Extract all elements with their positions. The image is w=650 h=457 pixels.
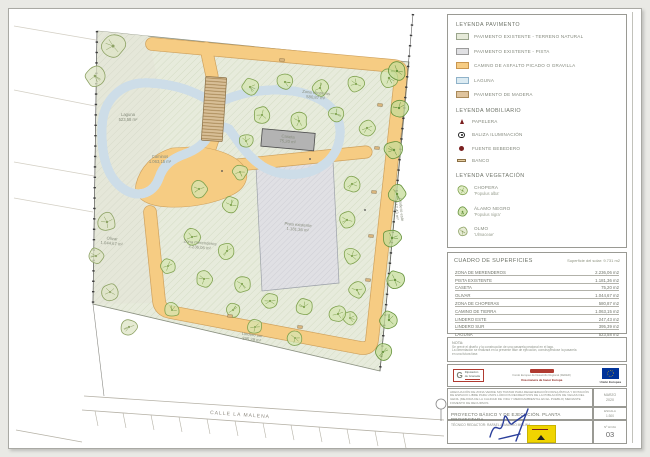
logos-box: G Diputaciónde Granada Fondo Europeo de … <box>447 364 627 387</box>
tree <box>376 344 392 361</box>
tree <box>254 107 269 124</box>
icon-wrap <box>456 146 467 151</box>
legend-item-label: CHOPERA <box>474 185 499 190</box>
surface-row: LINDERO ESTE247,43 m2 <box>455 315 619 323</box>
legend-item-label: BANCO <box>472 158 489 163</box>
legend-item-label: FUENTE BEBEDERO <box>472 146 520 151</box>
surface-row: OLIVAR1.044,67 m2 <box>455 291 619 299</box>
plan-sheet: CALLE LA MALENA Laguna523,58 m²Caminos1.… <box>0 0 650 457</box>
feder-emblem-icon <box>530 369 554 374</box>
tree <box>344 176 360 192</box>
legend-panel: LEYENDA PAVIMENTO PAVIMENTO EXISTENTE - … <box>447 14 627 248</box>
surface-value: 247,43 m2 <box>599 317 619 322</box>
nota-title: NOTA: <box>452 341 622 345</box>
diputacion-granada-logo: G Diputaciónde Granada <box>453 369 484 383</box>
baliza <box>364 209 366 211</box>
legend-item-label: LAGUNA <box>474 78 494 83</box>
escala-value: 1:300 <box>606 414 614 418</box>
surface-label: LINDERO ESTE <box>455 317 487 322</box>
fuente-icon <box>459 146 464 151</box>
icon-wrap <box>456 132 467 139</box>
diputacion-g-icon: G <box>457 372 463 380</box>
legend-item-label: CAMINO DE ASFALTO PICADO O GRAVILLA <box>474 63 575 68</box>
legend-pavimento-title: LEYENDA PAVIMENTO <box>456 22 626 28</box>
pavimento-swatch <box>456 33 469 40</box>
legend-item-label: OLMO <box>474 226 494 231</box>
surface-value: 580,87 m2 <box>599 301 619 306</box>
tree <box>458 186 468 195</box>
legend-item-label: PAVIMENTO DE MADERA <box>474 92 533 97</box>
escala-cell: ESCALA 1:300 <box>593 407 627 420</box>
bench <box>372 190 377 193</box>
surface-value: 1.063,15 m2 <box>595 309 619 314</box>
eu-flag-icon <box>602 368 619 379</box>
legend-item-sublabel: 'Ulmaceae' <box>474 232 494 237</box>
feder-logo: Fondo Europeo de Desarrollo Regional (FE… <box>512 369 570 383</box>
legend-item: ÁLAMO NEGRO'Populus nigra' <box>456 205 626 218</box>
eu-label: Unión Europea <box>600 380 621 384</box>
bench <box>366 278 371 281</box>
legend-item: OLMO'Ulmaceae' <box>456 225 626 238</box>
date-label: MARZO <box>604 393 616 397</box>
tree <box>287 331 302 345</box>
bench <box>369 234 374 237</box>
street <box>16 396 444 448</box>
signature <box>486 411 532 445</box>
nota-line: en una futura fase. <box>452 353 622 357</box>
surfaces-rows: ZONA DE MERENDEROS2.236,06 m2PISTA EXIST… <box>448 268 626 346</box>
tecnico-box: TÉCNICO REDACTOR: RAFAEL ALMAGRO MOLINA <box>447 420 593 444</box>
zone-label: Lindero este247,43 m² <box>393 198 405 223</box>
date-cell: MARZO 2020 <box>593 388 627 407</box>
tree <box>235 277 251 293</box>
legend-vegetacion-title: LEYENDA VEGETACIÓN <box>456 173 626 179</box>
pavimento-swatch <box>456 62 469 69</box>
pavimento-swatch <box>456 77 469 84</box>
surface-row: PISTA EXISTENTE1.181,36 m2 <box>455 276 619 284</box>
legend-item: LAGUNA <box>456 77 626 84</box>
tree <box>387 271 405 289</box>
legend-pavimento-items: PAVIMENTO EXISTENTE - TERRENO NATURALPAV… <box>448 33 626 98</box>
pavimento-swatch <box>456 91 469 98</box>
surface-row: ZONA DE CHOPERAS580,87 m2 <box>455 299 619 307</box>
surface-label: ZONA DE CHOPERAS <box>455 301 499 306</box>
papelera-icon <box>460 119 464 124</box>
legend-item-sublabel: 'Populus alba' <box>474 191 499 196</box>
bench <box>228 314 233 317</box>
zone-label: Caseta75,20 m² <box>279 133 297 144</box>
legend-item: CHOPERA'Populus alba' <box>456 184 626 197</box>
tree <box>391 100 409 117</box>
legend-item-text: ÁLAMO NEGRO'Populus nigra' <box>474 206 510 217</box>
diputacion-line2: de Granada <box>465 374 480 378</box>
tree-icon <box>456 205 469 218</box>
tree <box>102 284 119 301</box>
surface-row: LINDERO SUR395,39 m2 <box>455 323 619 331</box>
legend-item-text: CHOPERA'Populus alba' <box>474 185 499 196</box>
surfaces-subtitle: Superficie del solar: 9.731 m2 <box>567 258 620 263</box>
surface-row: CAMINO DE TIERRA1.063,15 m2 <box>455 307 619 315</box>
tree-icon <box>456 225 469 238</box>
frame-line-right <box>632 12 633 443</box>
project-description-box: ADECUACIÓN DE ZONA VERDE SIN TRATAR PARA… <box>447 388 593 407</box>
surface-row: ZONA DE MERENDEROS2.236,06 m2 <box>455 268 619 276</box>
feder-line1: Fondo Europeo de Desarrollo Regional (FE… <box>512 374 570 377</box>
surface-label: PISTA EXISTENTE <box>455 278 492 283</box>
legend-item: PAVIMENTO EXISTENTE - TERRENO NATURAL <box>456 33 626 40</box>
legend-item-sublabel: 'Populus nigra' <box>474 212 510 217</box>
legend-mobiliario-items: PAPELERABALIZA ILUMINACIÓNFUENTE BEBEDER… <box>448 119 626 163</box>
legend-item: BALIZA ILUMINACIÓN <box>456 132 626 139</box>
legend-item-label: ÁLAMO NEGRO <box>474 206 510 211</box>
eu-logo: Unión Europea <box>600 368 621 384</box>
legend-item: PAVIMENTO DE MADERA <box>456 91 626 98</box>
tree <box>291 112 306 130</box>
baliza <box>221 170 223 172</box>
date-year: 2020 <box>606 398 614 402</box>
bench <box>298 325 303 328</box>
tree <box>160 259 175 274</box>
tree <box>121 320 137 335</box>
surfaces-table: CUADRO DE SUPERFICIES Superficie del sol… <box>447 252 627 334</box>
legend-item-label: PAVIMENTO EXISTENTE - PISTA <box>474 49 550 54</box>
legend-item-label: BALIZA ILUMINACIÓN <box>472 132 523 137</box>
tree-icon <box>456 184 469 197</box>
legend-item: PAVIMENTO EXISTENTE - PISTA <box>456 48 626 55</box>
pavimento-swatch <box>456 48 469 55</box>
tree <box>458 206 467 215</box>
surface-label: OLIVAR <box>455 293 470 298</box>
icon-wrap <box>456 159 467 163</box>
legend-item: BANCO <box>456 158 626 163</box>
zone-label: Lindero sur395,39 m² <box>241 331 264 343</box>
escala-label: ESCALA <box>604 409 616 413</box>
tree <box>340 212 355 228</box>
feder-line2: Una manera de hacer Europa <box>521 378 563 382</box>
baliza <box>309 158 311 160</box>
street-label: CALLE LA MALENA <box>210 410 270 420</box>
bench <box>375 146 380 149</box>
tree <box>85 66 105 87</box>
nota-box: NOTA: Se prevé el diseño y la construcci… <box>447 337 627 362</box>
parcel-lines-west <box>14 26 96 212</box>
pasarela-madera <box>201 76 226 141</box>
legend-item: PAPELERA <box>456 119 626 124</box>
hoja-cell: Nº HOJA 03 <box>593 420 627 444</box>
hoja-value: 03 <box>606 430 614 439</box>
icon-wrap <box>456 119 467 124</box>
legend-item-text: OLMO'Ulmaceae' <box>474 226 494 237</box>
legend-item: FUENTE BEBEDERO <box>456 146 626 151</box>
marker-symbol-icon <box>436 399 446 421</box>
surface-value: 395,39 m2 <box>599 324 619 329</box>
legend-vegetacion-items: CHOPERA'Populus alba'ÁLAMO NEGRO'Populus… <box>448 184 626 238</box>
surface-label: CAMINO DE TIERRA <box>455 309 496 314</box>
legend-mobiliario-title: LEYENDA MOBILIARIO <box>456 108 626 114</box>
surface-value: 75,20 m2 <box>601 285 619 290</box>
tree <box>296 299 312 315</box>
surface-label: ZONA DE MERENDEROS <box>455 270 506 275</box>
bench <box>280 58 285 61</box>
surface-value: 1.044,67 m2 <box>595 293 619 298</box>
surface-label: CASETA <box>455 285 472 290</box>
surface-row: CASETA75,20 m2 <box>455 284 619 292</box>
baliza-icon <box>458 132 465 139</box>
surface-value: 1.181,36 m2 <box>595 278 619 283</box>
surfaces-title: CUADRO DE SUPERFICIES <box>454 258 533 264</box>
legend-item: CAMINO DE ASFALTO PICADO O GRAVILLA <box>456 62 626 69</box>
tree <box>239 135 253 147</box>
surface-value: 2.236,06 m2 <box>595 270 619 275</box>
hoja-label: Nº HOJA <box>604 425 616 429</box>
legend-item-label: PAPELERA <box>472 119 498 124</box>
tree <box>219 243 234 259</box>
tree <box>383 230 401 247</box>
project-description: ADECUACIÓN DE ZONA VERDE SIN TRATAR PARA… <box>448 389 592 408</box>
nota-lines: Se prevé el diseño y la construcción de … <box>448 346 626 358</box>
surface-label: LINDERO SUR <box>455 324 484 329</box>
tree <box>459 227 468 236</box>
legend-item-label: PAVIMENTO EXISTENTE - TERRENO NATURAL <box>474 34 583 39</box>
bench <box>378 103 383 106</box>
banco-icon <box>457 159 466 163</box>
